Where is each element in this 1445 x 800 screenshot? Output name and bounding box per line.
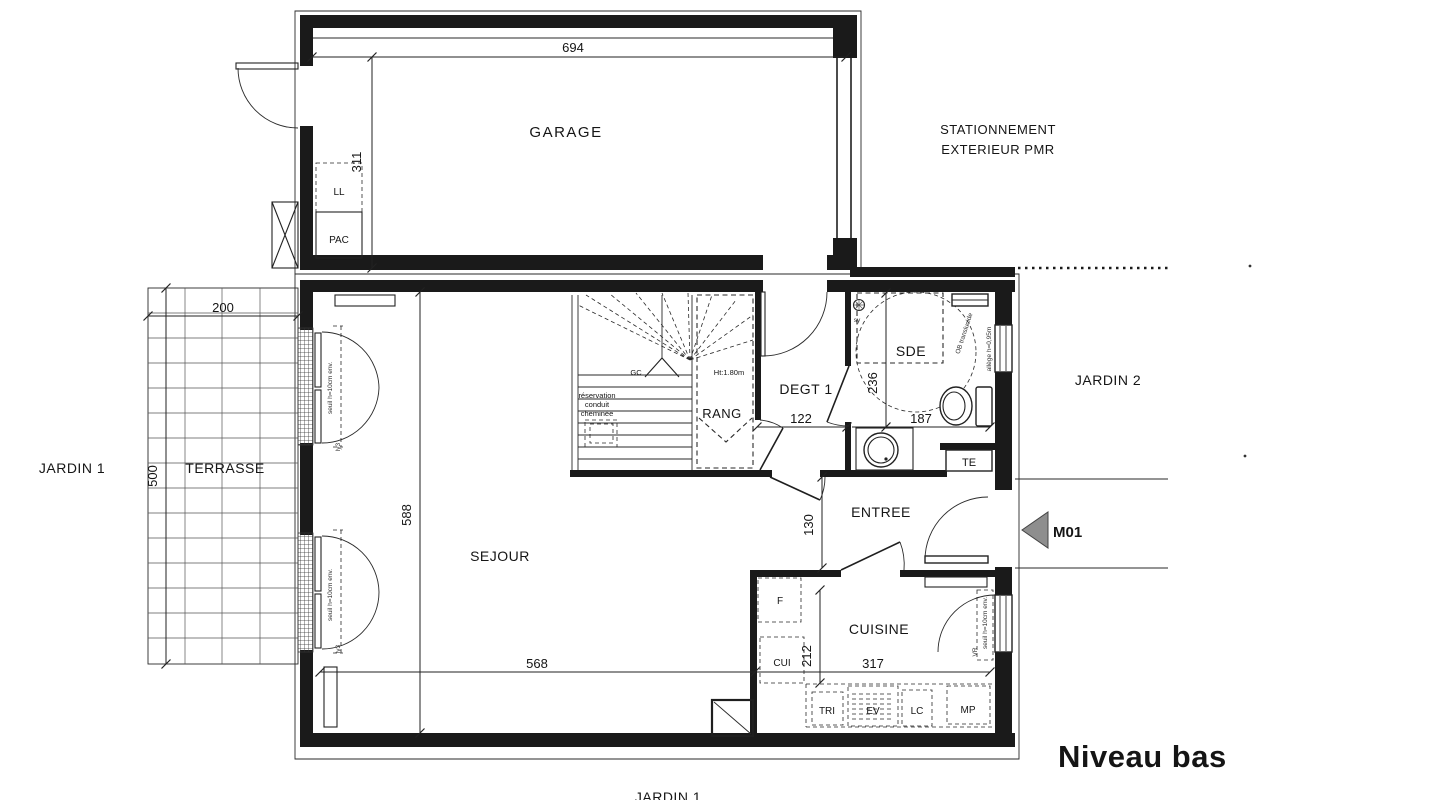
label-reservation-1: réservation	[578, 391, 615, 400]
site-lines	[1015, 265, 1251, 568]
door-reference: M01	[1053, 524, 1082, 541]
label-seuil-3: seuil h=10cm env.	[982, 597, 989, 649]
terrasse-paving	[148, 288, 298, 664]
radiator	[925, 577, 987, 587]
label-te: TE	[962, 457, 976, 469]
dim-garage-depth: 311	[349, 152, 364, 173]
sejour-french-door-2	[315, 530, 379, 653]
washbasin	[856, 428, 913, 470]
door-sill-hatch	[298, 533, 313, 652]
label-degt: DEGT 1	[779, 381, 832, 397]
dim-cuisine-width: 317	[862, 656, 884, 671]
radiator	[335, 295, 395, 306]
dim-sejour-depth: 588	[399, 504, 414, 526]
staircase	[578, 293, 753, 470]
label-stair-height: Ht:1.80m	[714, 368, 744, 377]
label-jardin1-bottom: JARDIN 1	[635, 789, 701, 800]
label-terrasse: TERRASSE	[185, 460, 264, 476]
entry-to-kitchen-door	[841, 542, 904, 570]
label-jardin2: JARDIN 2	[1075, 372, 1141, 388]
dim-entree-depth: 130	[801, 514, 816, 536]
floor-plan-page: M01 694 311 200 500 588 568 317 212 122 …	[0, 0, 1445, 800]
dim-sde-width: 187	[910, 411, 932, 426]
label-cui: CUI	[773, 658, 790, 669]
label-ll: LL	[333, 187, 345, 198]
label-entree: ENTREE	[851, 504, 911, 520]
entry-marker: M01	[1022, 512, 1082, 548]
label-tri: TRI	[819, 706, 835, 717]
hall-to-entry-door	[770, 477, 825, 500]
label-vr: VR	[972, 647, 979, 656]
garage-door	[837, 58, 851, 238]
rang-arrow	[699, 418, 752, 442]
sde-window	[995, 325, 1012, 372]
label-cuisine: CUISINE	[849, 621, 909, 637]
radiator	[324, 667, 337, 727]
sejour-french-door-1	[315, 326, 379, 447]
page-title: Niveau bas	[1058, 739, 1227, 774]
label-reservation-3: cheminée	[581, 409, 614, 418]
label-seuil-2: seuil h=10cm env.	[327, 569, 334, 621]
dim-terrasse-depth: 500	[145, 465, 160, 487]
label-garage: GARAGE	[529, 124, 602, 141]
label-jardin1-left: JARDIN 1	[39, 460, 105, 476]
duct-shaft	[712, 700, 753, 736]
label-rang: RANG	[702, 406, 742, 421]
dim-degt-width: 122	[790, 411, 812, 426]
kitchen-window	[995, 595, 1012, 652]
label-ev: EV	[866, 706, 880, 717]
label-gc: GC	[630, 368, 642, 377]
stair-direction-arrow	[645, 358, 679, 377]
label-ly3-1: ly3	[335, 442, 342, 451]
dim-terrasse-width: 200	[212, 300, 234, 315]
dim-cuisine-depth: 212	[799, 645, 814, 667]
building-outer-outline	[295, 11, 1019, 759]
floor-drain-icon	[854, 300, 865, 311]
floor-plan-drawing: M01 694 311 200 500 588 568 317 212 122 …	[0, 0, 1445, 800]
garage-to-hall-door	[761, 292, 827, 356]
label-ly3-2: ly3	[335, 644, 342, 653]
dim-garage-width: 694	[562, 40, 584, 55]
label-sde: SDE	[896, 343, 926, 359]
dim-sde-depth: 236	[865, 372, 880, 394]
label-allege: allège h=0,95m	[986, 327, 993, 372]
label-ob-translucide: OB translucide	[955, 312, 975, 355]
labels: GARAGE SEJOUR CUISINE ENTREE SDE DEGT 1 …	[39, 122, 1227, 800]
door-sill-hatch	[298, 328, 313, 445]
garage-side-door	[236, 63, 298, 128]
label-sy: sy	[854, 317, 861, 324]
front-door	[925, 497, 988, 563]
walls	[298, 15, 1015, 747]
label-sejour: SEJOUR	[470, 548, 530, 564]
label-f: F	[777, 596, 783, 607]
label-stationnement-2: EXTERIEUR PMR	[941, 142, 1054, 157]
label-reservation-2: conduit	[585, 400, 610, 409]
dim-sejour-width: 568	[526, 656, 548, 671]
toilet	[940, 387, 992, 426]
chimney-duct-reservation	[585, 420, 617, 447]
label-mp: MP	[961, 705, 976, 716]
exterior-post-box	[272, 202, 298, 268]
label-stationnement-1: STATIONNEMENT	[940, 122, 1056, 137]
label-pac: PAC	[329, 235, 349, 246]
label-seuil-1: seuil h=10cm env.	[327, 362, 334, 414]
entry-arrow-icon	[1022, 512, 1048, 548]
rang-storage	[697, 295, 753, 468]
label-lc: LC	[911, 706, 924, 717]
